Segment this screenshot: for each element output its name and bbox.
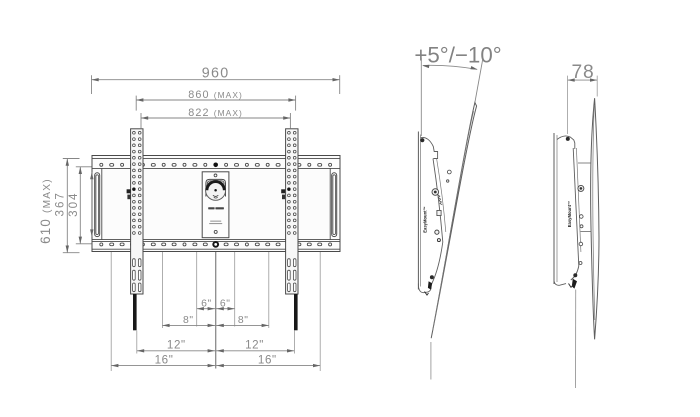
svg-text:6": 6" <box>201 299 212 310</box>
svg-text:+5°/−10°: +5°/−10° <box>414 42 501 67</box>
svg-text:EasyMount™: EasyMount™ <box>567 201 572 228</box>
svg-text:12": 12" <box>245 339 264 352</box>
svg-text:16": 16" <box>258 353 277 366</box>
svg-text:960: 960 <box>202 66 230 82</box>
svg-text:8": 8" <box>238 315 249 326</box>
svg-text:12": 12" <box>167 339 186 352</box>
svg-text:6": 6" <box>220 299 231 310</box>
svg-text:367: 367 <box>54 191 67 216</box>
svg-text:822 (MAX): 822 (MAX) <box>188 107 243 119</box>
svg-text:304: 304 <box>67 192 80 217</box>
svg-text:16": 16" <box>155 353 174 366</box>
svg-text:8": 8" <box>183 315 194 326</box>
svg-text:860 (MAX): 860 (MAX) <box>188 89 243 101</box>
svg-text:EasyMount™: EasyMount™ <box>422 206 427 233</box>
